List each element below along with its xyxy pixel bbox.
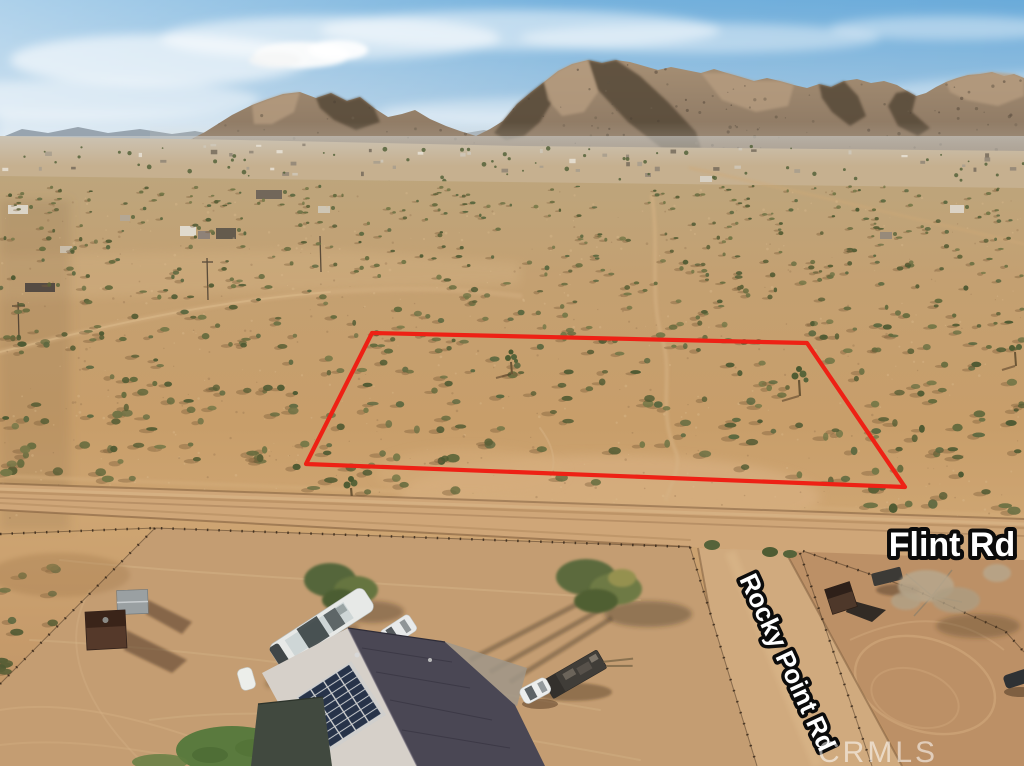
shrub	[705, 279, 709, 281]
shrub	[486, 205, 490, 208]
distant-house	[291, 162, 297, 166]
sand-grain	[939, 483, 940, 484]
sand-grain	[522, 298, 524, 300]
rock-speck	[588, 88, 590, 90]
sand-grain	[40, 470, 42, 472]
shrub	[129, 476, 136, 481]
shrub	[917, 194, 921, 197]
shrub	[600, 269, 605, 272]
sand-grain	[949, 394, 950, 395]
distant-tree	[23, 156, 25, 158]
shrub	[572, 301, 577, 304]
shrub	[143, 207, 147, 211]
sand-grain	[786, 467, 788, 469]
shrub	[665, 232, 668, 235]
shrub	[1014, 449, 1021, 453]
sand-grain	[466, 215, 468, 217]
shrub	[229, 305, 238, 310]
sand-grain	[72, 242, 75, 245]
shrub	[305, 187, 309, 190]
shrub	[441, 416, 451, 421]
shrub	[111, 418, 120, 424]
shrub	[741, 464, 749, 470]
shrub	[907, 348, 914, 354]
shrub	[1007, 507, 1020, 515]
shrub	[518, 371, 524, 374]
shrub	[99, 331, 104, 336]
sand-grain	[4, 442, 5, 443]
sand-grain	[769, 243, 771, 245]
sand-grain	[28, 302, 29, 303]
sand-grain	[933, 468, 934, 469]
sand-grain	[327, 271, 329, 273]
shrub	[51, 202, 56, 204]
distant-tree	[996, 173, 999, 176]
shrub	[561, 283, 568, 286]
shrub	[12, 423, 19, 430]
shrub	[681, 433, 686, 437]
sand-grain	[897, 457, 898, 458]
shrub	[909, 260, 914, 264]
distant-tree	[283, 171, 285, 173]
shrub	[406, 370, 414, 374]
shrub	[1006, 237, 1011, 240]
distant-tree	[522, 170, 524, 172]
shrub	[769, 217, 775, 219]
sand-grain	[695, 435, 696, 436]
sand-grain	[710, 290, 713, 293]
distant-house	[270, 168, 274, 171]
sand-grain	[301, 248, 303, 250]
shrub	[928, 324, 937, 329]
rock-speck	[785, 117, 786, 118]
shrub	[240, 343, 247, 348]
sand-grain	[341, 296, 343, 298]
distant-house	[576, 169, 580, 172]
sand-grain	[596, 246, 598, 248]
sand-grain	[363, 307, 364, 308]
sand-grain	[467, 462, 469, 464]
shrub	[378, 235, 382, 237]
sand-grain	[628, 406, 630, 408]
distant-tree	[643, 160, 647, 164]
shrub	[692, 223, 696, 226]
shrub	[873, 254, 876, 256]
sand-grain	[250, 264, 252, 266]
brown-shed	[85, 610, 127, 650]
sand-grain	[175, 203, 178, 206]
shrub	[969, 262, 974, 266]
sand-grain	[300, 252, 301, 253]
shrub	[86, 366, 94, 370]
sand-grain	[656, 324, 657, 325]
sand-grain	[105, 229, 107, 231]
sand-grain	[551, 499, 552, 500]
rock-speck	[560, 106, 561, 107]
shrub	[390, 337, 395, 341]
shrub	[230, 188, 235, 190]
shrub	[564, 369, 574, 374]
shrub	[911, 384, 920, 389]
shrub	[971, 362, 981, 368]
shrub	[50, 186, 53, 189]
sand-grain	[197, 397, 200, 400]
rock-speck	[954, 86, 956, 88]
shrub	[679, 266, 683, 271]
sand-grain	[645, 326, 646, 327]
sand-grain	[379, 492, 380, 493]
shrub	[846, 248, 853, 250]
shrub	[845, 271, 849, 274]
shrub	[397, 326, 405, 329]
sand-grain	[288, 455, 289, 456]
sand-grain	[624, 458, 627, 461]
shrub	[717, 300, 723, 304]
shrub	[425, 218, 428, 221]
shrub	[671, 345, 676, 348]
shrub	[702, 396, 708, 402]
shrub	[778, 228, 781, 230]
shrub	[270, 412, 280, 416]
sand-grain	[628, 321, 630, 323]
sand-grain	[909, 259, 910, 260]
shrub	[66, 266, 74, 270]
shrub	[72, 271, 76, 276]
sand-grain	[550, 235, 553, 238]
sand-grain	[297, 341, 299, 343]
shrub	[257, 202, 261, 205]
shrub	[190, 316, 196, 319]
shrub	[771, 213, 774, 215]
sand-grain	[766, 248, 769, 251]
rock-speck	[775, 115, 778, 118]
shrub	[527, 260, 532, 264]
sand-grain	[762, 208, 765, 211]
sand-grain	[931, 279, 933, 281]
sand-grain	[662, 495, 665, 498]
sand-grain	[440, 356, 443, 359]
shrub	[180, 310, 189, 315]
sand-grain	[410, 458, 411, 459]
shrub	[438, 208, 441, 211]
sand-grain	[213, 453, 215, 455]
shrub	[895, 310, 901, 316]
rock-speck	[675, 105, 678, 108]
shrub	[17, 459, 24, 468]
shrub	[440, 231, 443, 233]
shrub	[189, 201, 192, 204]
sand-grain	[792, 192, 794, 194]
sand-grain	[857, 363, 859, 365]
sand-grain	[978, 374, 981, 377]
shrub	[491, 255, 494, 258]
shrub	[123, 202, 127, 204]
shrub	[615, 352, 625, 356]
home-tree	[713, 176, 717, 180]
sand-grain	[297, 454, 299, 456]
shrub	[767, 295, 772, 300]
sand-grain	[150, 230, 151, 231]
shrub	[323, 302, 328, 306]
sand-grain	[21, 395, 23, 397]
sand-grain	[669, 364, 671, 366]
shrub	[514, 362, 521, 368]
sand-grain	[235, 474, 238, 477]
shrub	[818, 298, 825, 302]
shrub	[133, 443, 144, 448]
sand-grain	[664, 211, 666, 213]
sand-grain	[721, 504, 723, 506]
distant-tree	[744, 172, 747, 175]
shrub	[16, 335, 21, 341]
shrub	[663, 406, 671, 410]
shrub	[164, 382, 172, 387]
sand-grain	[684, 247, 686, 249]
sand-grain	[686, 453, 687, 454]
sand-grain	[835, 200, 838, 203]
shrub	[238, 284, 246, 286]
distant-tree	[960, 168, 963, 171]
sand-grain	[35, 471, 37, 473]
shrub	[11, 238, 15, 241]
sand-grain	[667, 315, 669, 317]
desert-home	[880, 232, 892, 239]
rock-speck	[612, 103, 614, 105]
shrub	[452, 339, 456, 343]
shrub	[298, 223, 302, 227]
shrub	[826, 319, 833, 324]
shrub	[623, 293, 632, 296]
distant-house	[160, 160, 166, 163]
sand-grain	[697, 396, 699, 398]
shrub	[963, 285, 968, 290]
shrub	[768, 380, 777, 384]
shrub	[277, 344, 287, 349]
shrub	[763, 260, 769, 264]
lawn-patch	[192, 747, 228, 763]
shrub	[318, 185, 321, 188]
shrub	[847, 227, 853, 230]
rock-speck	[907, 110, 909, 112]
shrub	[303, 212, 308, 214]
sand-grain	[89, 347, 90, 348]
sand-grain	[995, 299, 996, 300]
shrub	[117, 459, 123, 464]
shrub	[438, 318, 444, 323]
shrub	[855, 208, 859, 212]
shrub	[459, 340, 469, 344]
shrub	[39, 226, 44, 229]
sand-grain	[376, 419, 378, 421]
shrub	[926, 381, 936, 386]
shrub	[497, 426, 505, 431]
sand-grain	[573, 226, 575, 228]
sand-grain	[649, 345, 651, 347]
shrub	[894, 390, 905, 396]
shrub	[701, 269, 707, 273]
shrub	[743, 288, 749, 293]
sand-grain	[120, 253, 121, 254]
shrub	[139, 290, 147, 292]
sand-grain	[173, 366, 174, 367]
shrub	[858, 189, 861, 191]
shrub	[1007, 379, 1017, 386]
shrub	[317, 221, 323, 224]
sand-grain	[988, 512, 990, 514]
sand-grain	[264, 419, 265, 420]
sand-grain	[820, 318, 822, 320]
distant-tree	[546, 146, 550, 150]
sand-grain	[987, 246, 988, 247]
sand-grain	[493, 367, 494, 368]
sand-grain	[502, 407, 504, 409]
sand-grain	[1011, 200, 1012, 201]
sand-grain	[410, 238, 411, 239]
sand-grain	[31, 454, 34, 457]
sand-grain	[268, 231, 270, 233]
sand-grain	[12, 415, 14, 417]
shrub	[544, 272, 547, 276]
shrub	[584, 242, 587, 244]
sand-grain	[59, 237, 61, 239]
sand-grain	[296, 460, 298, 462]
sand-grain	[532, 446, 535, 449]
shrub	[124, 404, 129, 411]
sand-grain	[758, 348, 760, 350]
shrub	[746, 397, 755, 404]
distant-tree	[535, 162, 537, 164]
sand-grain	[475, 353, 477, 355]
shrub	[41, 258, 44, 261]
shrub	[284, 247, 291, 251]
sand-grain	[389, 269, 392, 272]
shrub	[17, 303, 25, 306]
shrub	[701, 310, 708, 314]
sand-grain	[140, 265, 141, 266]
patio-roof	[251, 697, 332, 766]
shrub	[326, 443, 332, 447]
rock-speck	[744, 85, 746, 87]
distant-house	[373, 161, 380, 164]
shrub	[998, 503, 1012, 508]
shrub	[46, 236, 52, 240]
sand-grain	[22, 293, 24, 295]
sand-grain	[99, 287, 101, 289]
shrub	[380, 360, 388, 366]
shrub	[16, 202, 21, 204]
sand-grain	[228, 262, 230, 264]
shrub	[993, 322, 997, 325]
rock-speck	[727, 92, 728, 93]
shrub	[79, 237, 82, 241]
shrub	[683, 260, 689, 265]
shrub	[670, 250, 674, 253]
rock-speck	[938, 111, 940, 113]
sand-grain	[310, 253, 311, 254]
shrub	[576, 186, 581, 187]
sand-grain	[336, 475, 337, 476]
shrub	[470, 369, 475, 372]
shrub	[670, 207, 675, 210]
sand-grain	[380, 438, 382, 440]
shrub	[863, 217, 869, 219]
shrub	[885, 305, 889, 310]
shrub	[225, 260, 229, 262]
shrub	[183, 399, 194, 403]
shrub	[830, 272, 835, 277]
sand-grain	[1013, 291, 1014, 292]
rock-speck	[605, 90, 607, 92]
sand-grain	[456, 410, 459, 413]
sand-grain	[961, 328, 962, 329]
shrub	[209, 230, 214, 233]
shrub	[341, 194, 343, 198]
sand-grain	[708, 407, 709, 408]
shrub	[794, 199, 798, 202]
shrub	[958, 471, 964, 477]
sand-grain	[804, 209, 807, 212]
shrub	[974, 410, 986, 417]
shrub	[438, 233, 443, 237]
shrub	[431, 388, 437, 394]
sand-grain	[690, 229, 692, 231]
shrub	[728, 236, 732, 240]
sand-grain	[235, 411, 237, 413]
sand-grain	[1000, 426, 1001, 427]
desert-home	[700, 176, 712, 182]
sand-grain	[708, 326, 710, 328]
shrub	[745, 205, 750, 208]
sand-grain	[251, 320, 253, 322]
shrub	[446, 346, 451, 351]
sand-grain	[581, 258, 583, 260]
shrub	[586, 386, 594, 391]
shrub	[307, 486, 320, 490]
shrub	[814, 187, 817, 189]
sand-grain	[564, 482, 566, 484]
shrub	[354, 270, 359, 273]
shrub	[537, 446, 547, 452]
sand-grain	[79, 411, 82, 414]
sand-grain	[898, 498, 900, 500]
shrub	[466, 194, 470, 196]
sand-grain	[207, 211, 210, 214]
sand-grain	[314, 439, 315, 440]
shrub	[774, 288, 777, 293]
sand-grain	[771, 286, 774, 289]
sand-grain	[273, 443, 274, 444]
shrub	[159, 193, 164, 195]
sand-grain	[616, 498, 618, 500]
shrub	[354, 333, 358, 338]
sand-grain	[508, 363, 509, 364]
sand-grain	[271, 451, 272, 452]
shrub	[787, 189, 789, 192]
rock-speck	[327, 118, 329, 120]
sand-grain	[349, 441, 350, 442]
sand-grain	[193, 331, 194, 332]
distant-house	[962, 165, 965, 168]
rock-speck	[957, 107, 960, 110]
shrub	[736, 271, 742, 275]
shrub	[718, 305, 724, 308]
sand-grain	[44, 305, 46, 307]
distant-house	[1010, 167, 1016, 171]
sand-grain	[354, 230, 356, 232]
shrub	[290, 261, 294, 265]
sand-grain	[743, 400, 744, 401]
sand-grain	[347, 315, 349, 317]
